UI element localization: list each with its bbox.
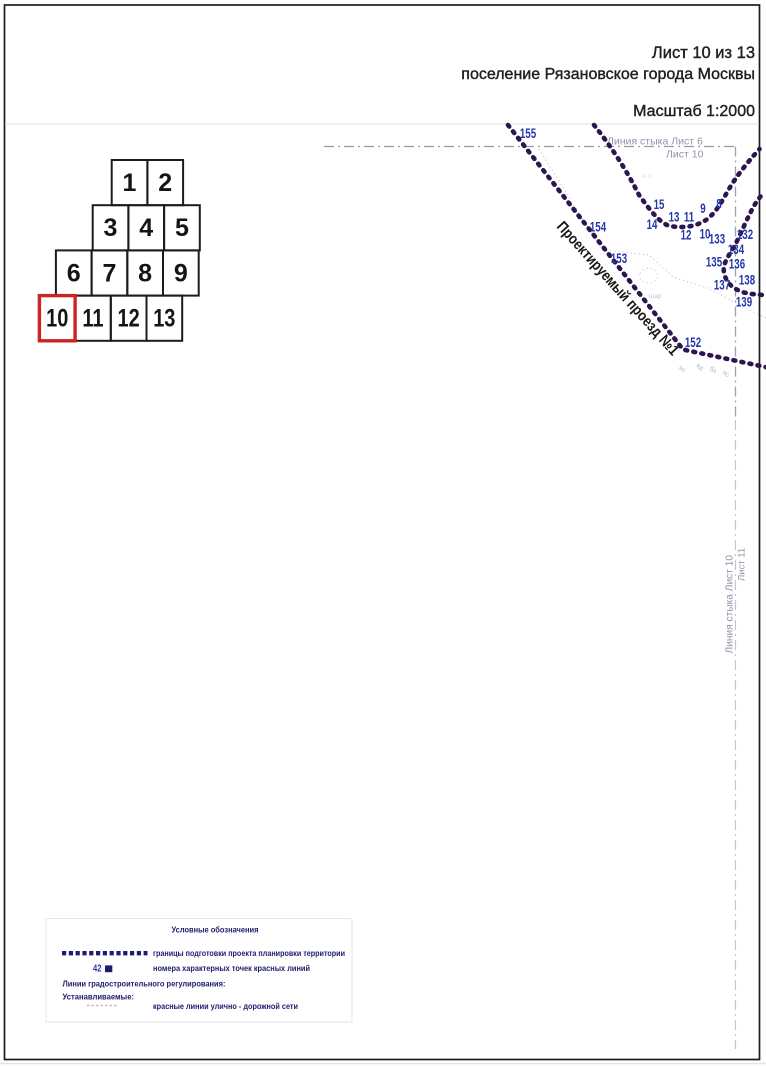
svg-text:8: 8 [138,259,152,287]
svg-text:красные линии улично - дорожно: красные линии улично - дорожной сети [153,1001,298,1011]
svg-text:6: 6 [67,259,81,287]
svg-text:границы подготовки проекта пла: границы подготовки проекта планировки те… [153,948,345,958]
svg-text:5: 5 [175,214,189,242]
svg-text:Масштаб 1:2000: Масштаб 1:2000 [633,103,755,120]
svg-text:9: 9 [700,202,706,217]
svg-text:10: 10 [46,305,68,333]
svg-text:134: 134 [728,243,745,258]
svg-text:153: 153 [611,252,628,267]
svg-text:Лист 10 из 13: Лист 10 из 13 [652,44,755,62]
svg-text:12: 12 [117,305,139,333]
svg-text:Линия стыка Лист 6: Линия стыка Лист 6 [607,136,703,148]
svg-text:11: 11 [82,305,103,333]
svg-text:139: 139 [736,295,753,310]
svg-text:13: 13 [153,305,175,333]
svg-text:Устанавливаемые:: Устанавливаемые: [63,992,135,1002]
svg-text:137: 137 [714,278,731,293]
svg-text:Лист 10: Лист 10 [666,149,704,161]
svg-text:3: 3 [104,214,118,242]
svg-text:12: 12 [681,228,692,243]
svg-text:1: 1 [123,169,137,197]
svg-text:шар: шар [649,293,662,300]
svg-text:поселение Рязановское города М: поселение Рязановское города Москвы [461,66,755,83]
svg-text:Условные обозначения: Условные обозначения [172,925,259,935]
svg-text:135: 135 [706,255,723,270]
svg-text:4: 4 [139,214,153,242]
svg-text:132: 132 [737,228,754,243]
svg-text:155: 155 [520,127,537,142]
svg-text:138: 138 [739,273,756,288]
svg-text:ч.л.: ч.л. [642,173,653,180]
svg-text:7: 7 [102,259,116,287]
svg-text:42: 42 [93,962,101,973]
svg-text:Линии градостроительного регул: Линии градостроительного регулирования: [63,979,226,989]
svg-text:номера характерных точек красн: номера характерных точек красных линий [153,963,310,973]
svg-text:9: 9 [174,259,188,287]
svg-text:8: 8 [716,197,722,212]
svg-text:11: 11 [684,210,695,225]
svg-text:Лист 11: Лист 11 [737,548,748,581]
svg-text:13: 13 [669,210,680,225]
svg-text:133: 133 [709,232,726,247]
svg-text:15: 15 [654,198,665,213]
svg-text:Линия стыка Лист 10: Линия стыка Лист 10 [725,555,736,654]
svg-text:2: 2 [158,169,172,197]
svg-text:152: 152 [685,336,702,351]
svg-text:136: 136 [729,257,746,272]
svg-text:14: 14 [647,218,658,233]
svg-text:154: 154 [590,220,607,235]
